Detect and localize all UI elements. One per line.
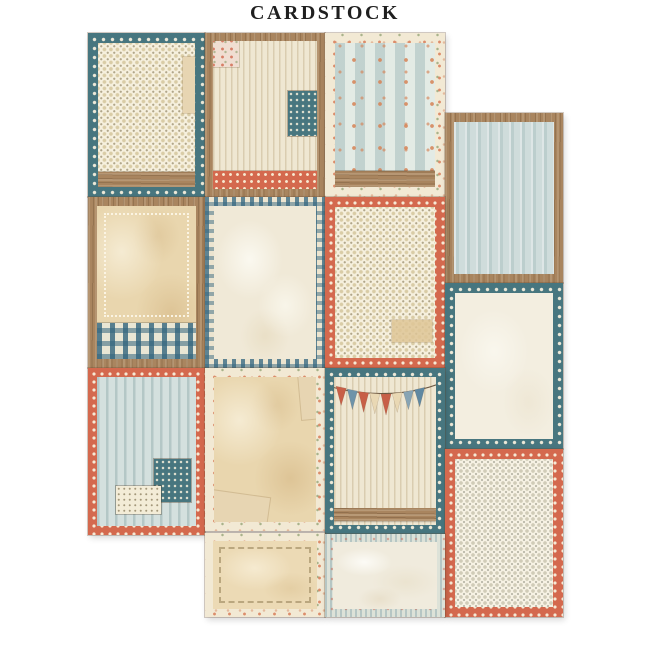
torn-paper-scrap — [298, 377, 316, 420]
card-floral-parchment — [205, 368, 325, 531]
card-floral-stars — [325, 33, 445, 197]
cardstock-sheet — [88, 33, 563, 617]
card-center — [454, 122, 554, 274]
card-wood-stripes-1 — [205, 33, 325, 197]
lace-stitch-border — [104, 213, 189, 317]
card-coral-dot-1 — [325, 197, 445, 368]
card-center — [97, 377, 196, 526]
card-center — [213, 41, 317, 189]
card-center — [335, 43, 435, 187]
card-center — [455, 293, 553, 439]
wood-strip — [335, 171, 435, 187]
card-wood-bluestripes — [445, 113, 563, 283]
card-center — [97, 206, 196, 359]
bunting-flag — [403, 390, 413, 410]
card-teal-dot-2 — [445, 283, 563, 449]
bunting-flag — [392, 392, 402, 412]
bunting-banner — [334, 378, 436, 422]
stitch-border — [219, 547, 311, 603]
card-bluestripe-marble-partial — [325, 534, 445, 617]
gingham-strip — [97, 323, 196, 359]
bunting-flag — [347, 389, 357, 410]
card-center — [333, 542, 437, 609]
floral-patch — [213, 41, 239, 67]
coral-dot-strip — [213, 171, 317, 189]
card-center — [214, 206, 316, 359]
torn-paper-scrap — [214, 490, 270, 522]
card-coral-dot-2 — [445, 449, 563, 617]
cream-dot-patch — [116, 486, 161, 514]
wood-strip — [98, 172, 195, 187]
card-center — [334, 377, 436, 525]
card-gingham-paper — [205, 197, 325, 368]
bunting-flag — [358, 391, 368, 412]
card-center — [98, 43, 195, 187]
wood-plank — [334, 508, 436, 521]
card-teal-dot-1 — [88, 33, 205, 197]
card-center — [213, 541, 317, 609]
bunting-banner-graphic — [334, 378, 436, 422]
product-image: CARDSTOCK — [0, 0, 650, 650]
bunting-flag — [381, 394, 391, 415]
card-center — [214, 377, 316, 522]
card-center — [455, 459, 553, 607]
card-coral-dot-stripes — [88, 368, 205, 535]
card-wood-parchment — [88, 197, 205, 368]
teal-fabric-patch — [288, 91, 317, 136]
card-bunting — [325, 368, 445, 534]
tan-paper-patch — [392, 320, 432, 342]
page-title: CARDSTOCK — [0, 2, 650, 25]
card-floral-tan-partial — [205, 533, 325, 617]
torn-paper-scrap — [183, 57, 195, 113]
bunting-flag — [336, 386, 346, 405]
bunting-flag — [415, 387, 425, 407]
bunting-flag — [370, 393, 380, 414]
card-center — [335, 207, 435, 358]
